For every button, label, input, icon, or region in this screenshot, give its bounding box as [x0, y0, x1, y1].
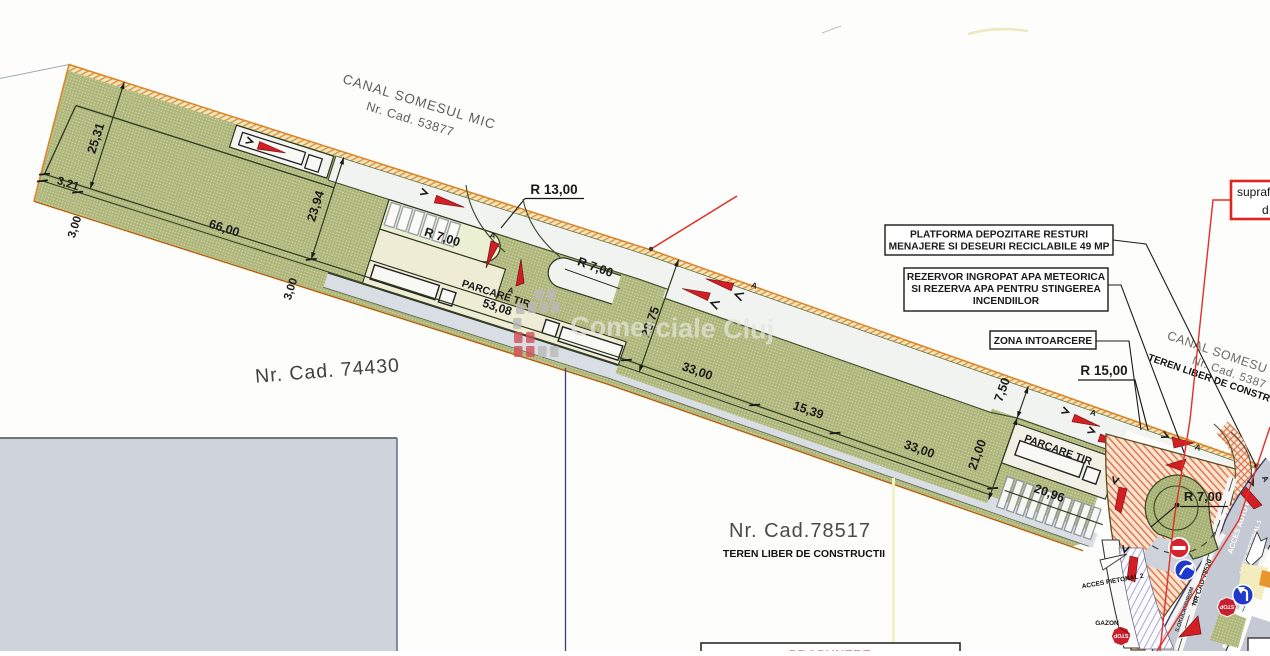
- svg-text:supraf: supraf: [1237, 185, 1270, 199]
- svg-text:Comerciale Cluj: Comerciale Cluj: [570, 311, 775, 345]
- svg-text:MENAJERE SI DESEURI RECICLABIL: MENAJERE SI DESEURI RECICLABILE 49 MP: [889, 242, 1110, 253]
- svg-text:R 13,00: R 13,00: [530, 182, 577, 197]
- svg-text:STOP: STOP: [1219, 603, 1234, 609]
- svg-text:ZONA INTOARCERE: ZONA INTOARCERE: [994, 336, 1093, 347]
- svg-text:d: d: [1262, 203, 1269, 217]
- svg-text:SI REZERVA APA PENTRU STINGERE: SI REZERVA APA PENTRU STINGEREA: [911, 284, 1101, 295]
- svg-text:INCENDIILOR: INCENDIILOR: [973, 296, 1040, 307]
- svg-text:R 15,00: R 15,00: [1080, 363, 1127, 378]
- svg-text:PROPUNERE: PROPUNERE: [789, 648, 872, 652]
- svg-text:TEREN LIBER DE CONSTRUCTII: TEREN LIBER DE CONSTRUCTII: [723, 548, 885, 560]
- svg-text:R 7,00: R 7,00: [1184, 489, 1222, 504]
- svg-text:REZERVOR INGROPAT APA METEORIC: REZERVOR INGROPAT APA METEORICA: [907, 272, 1106, 283]
- svg-text:PLATFORMA DEPOZITARE RESTURI: PLATFORMA DEPOZITARE RESTURI: [910, 230, 1088, 241]
- svg-text:STOP: STOP: [1113, 632, 1128, 638]
- svg-text:Nr. Cad.78517: Nr. Cad.78517: [729, 520, 871, 542]
- svg-text:GAZON: GAZON: [1095, 620, 1119, 627]
